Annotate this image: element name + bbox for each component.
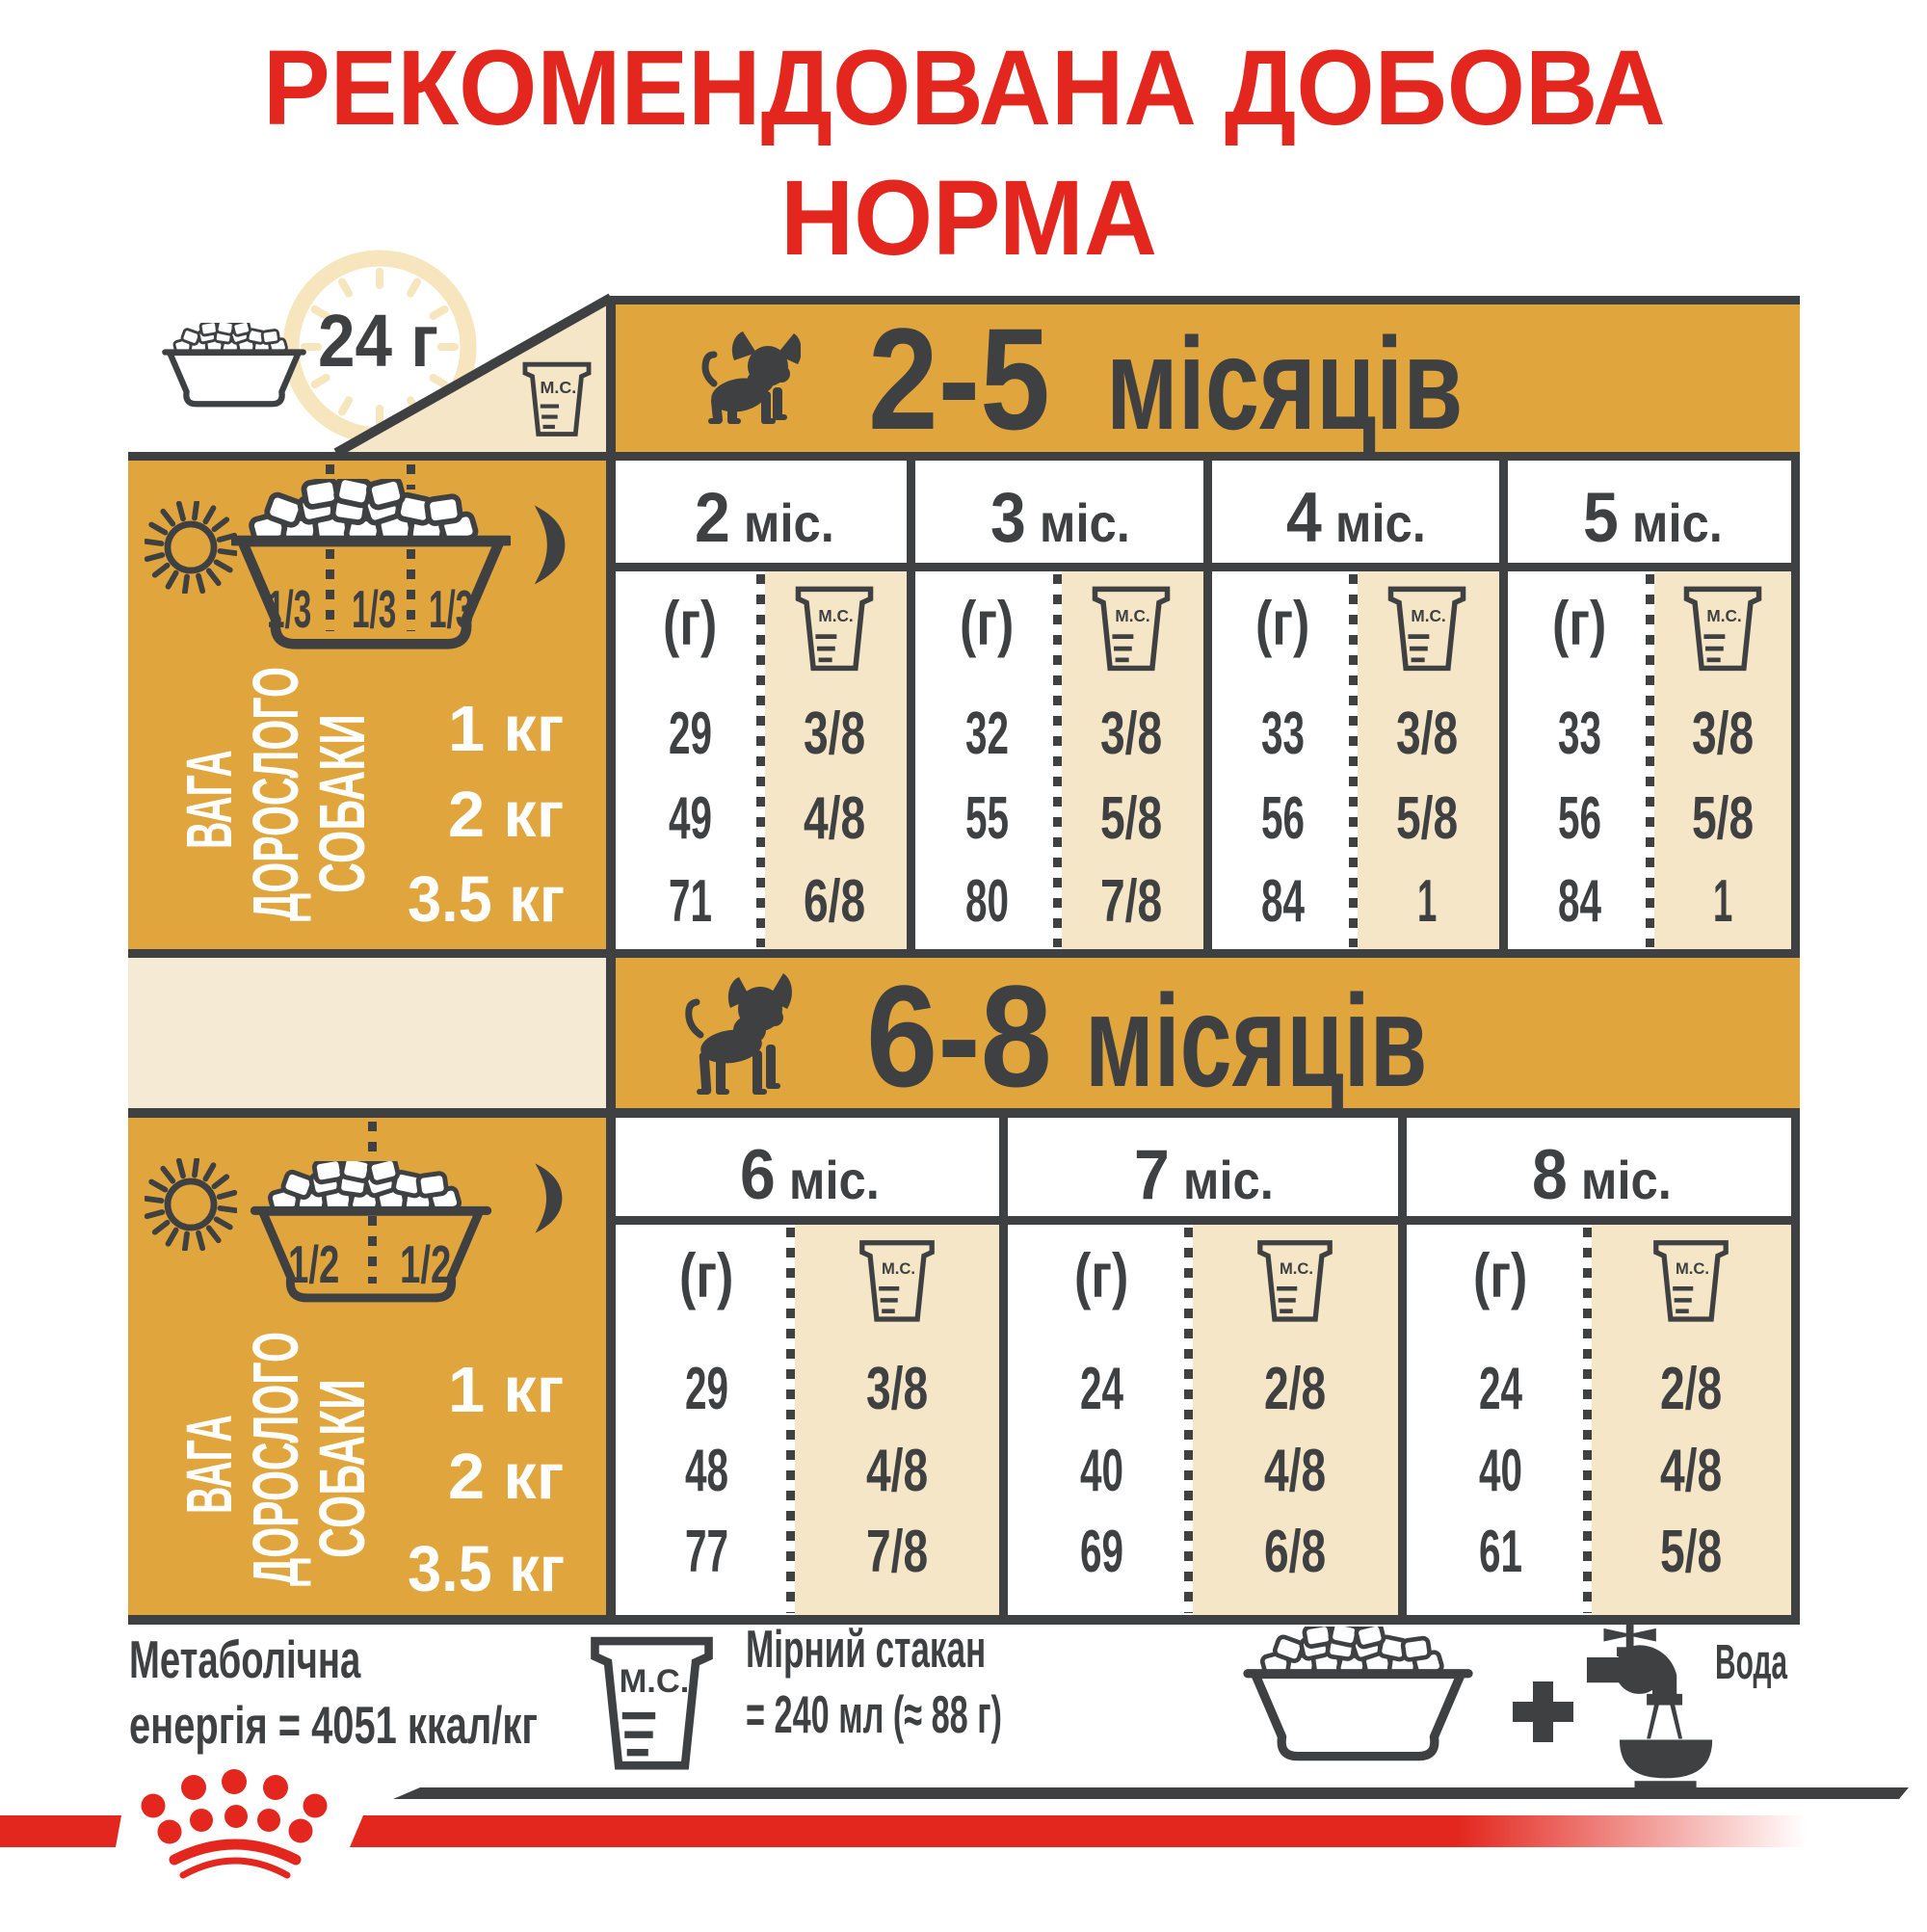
svg-text:М.С.: М.С. — [818, 606, 853, 625]
svg-text:М.С.: М.С. — [540, 378, 576, 397]
svg-text:М.С.: М.С. — [882, 1259, 915, 1278]
svg-text:М.С.: М.С. — [1280, 1259, 1313, 1278]
svg-text:М.С.: М.С. — [1676, 1259, 1709, 1278]
svg-text:М.С.: М.С. — [1411, 606, 1445, 625]
svg-text:М.С.: М.С. — [1706, 606, 1741, 625]
svg-text:М.С.: М.С. — [1115, 606, 1149, 625]
svg-text:М.С.: М.С. — [620, 1663, 690, 1700]
